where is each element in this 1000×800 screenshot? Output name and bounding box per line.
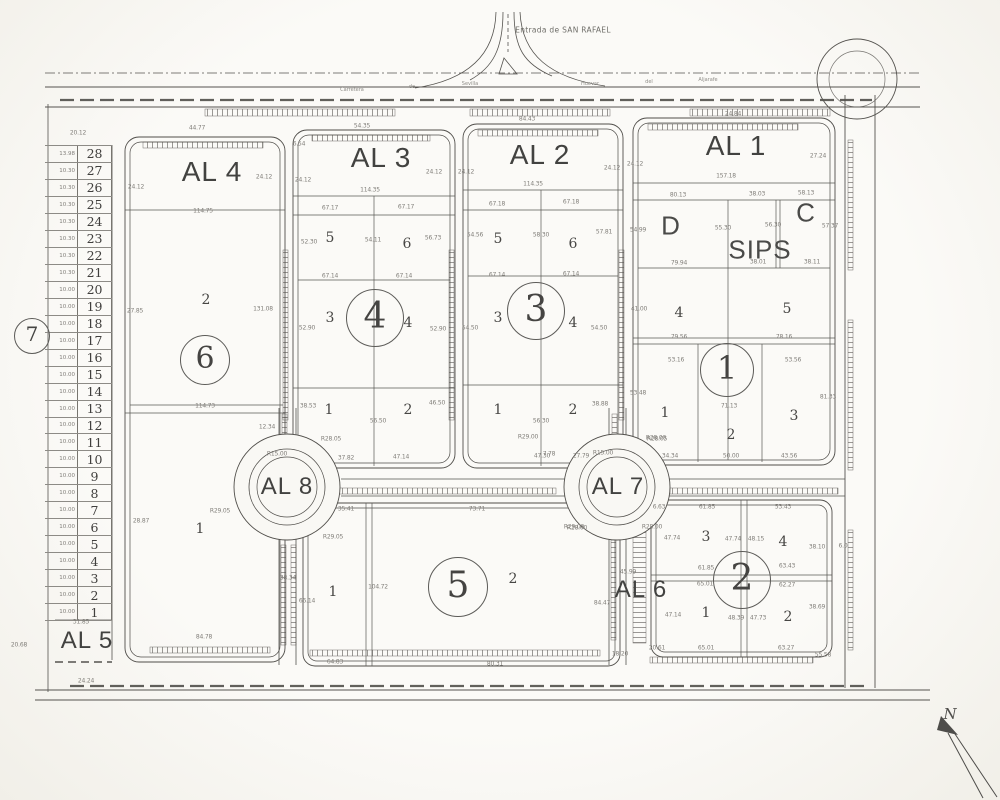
lot-number: 22 [77,248,112,264]
lot-number: 18 [77,316,112,332]
lot-row: 10.0015 [45,367,112,384]
lot-row: 10.008 [45,485,112,502]
lot-width-dim: 10.00 [45,282,77,298]
lot-width-dim: 10.00 [45,485,77,501]
lot-row: 10.003 [45,570,112,587]
site-plan-sheet: 13.982810.302710.302610.302510.302410.30… [0,0,1000,800]
lot-width-dim: 10.30 [45,197,77,213]
lot-width-dim: 10.00 [45,570,77,586]
lot-row: 10.0013 [45,401,112,418]
lot-row: 10.0010 [45,451,112,468]
right-road [817,39,897,688]
lot-width-dim: 10.00 [45,333,77,349]
lot-row: 10.004 [45,553,112,570]
lot-width-dim: 10.30 [45,180,77,196]
lot-width-dim: 10.00 [45,367,77,383]
lot-width-dim: 10.00 [45,502,77,518]
lot-row: 10.005 [45,536,112,553]
lot-row: 10.3022 [45,248,112,265]
lot-number: 28 [77,146,112,162]
road-junction [415,12,605,88]
lot-row: 10.002 [45,587,112,604]
lot-width-dim: 10.00 [45,401,77,417]
lot-width-dim: 10.00 [45,604,77,620]
lot-number: 7 [77,502,112,518]
lot-row: 10.3025 [45,197,112,214]
lot-width-dim: 10.00 [45,299,77,315]
lot-row: 10.3023 [45,231,112,248]
lot-width-dim: 10.30 [45,214,77,230]
lot-row: 10.007 [45,502,112,519]
lot-number: 17 [77,333,112,349]
lot-width-dim: 10.00 [45,468,77,484]
lot-number: 6 [77,519,112,535]
lot-width-dim: 10.30 [45,231,77,247]
lot-width-dim: 10.30 [45,163,77,179]
lot-number: 15 [77,367,112,383]
lot-number: 10 [77,451,112,467]
lot-number: 2 [77,587,112,603]
plan-linework [0,0,1000,800]
lot-number: 19 [77,299,112,315]
lot-width-dim: 10.30 [45,248,77,264]
lot-number: 16 [77,350,112,366]
lot-number: 5 [77,536,112,552]
lot-number: 13 [77,401,112,417]
lot-row: 10.0018 [45,316,112,333]
lot-row: 10.0012 [45,418,112,435]
lot-width-dim: 10.00 [45,434,77,450]
lot-number: 12 [77,418,112,434]
lot-row: 10.006 [45,519,112,536]
roundabout-al8 [234,434,340,540]
perimeter-roads [35,104,930,700]
lot-number: 11 [77,434,112,450]
lot-number: 21 [77,265,112,281]
lot-width-dim: 10.00 [45,519,77,535]
lot-row: 10.0020 [45,282,112,299]
lot-row: 10.3026 [45,180,112,197]
lot-number: 1 [77,604,112,620]
lot-number: 23 [77,231,112,247]
parking-hatch-strips [143,109,853,663]
lot-number: 3 [77,570,112,586]
lot-row: 10.3027 [45,163,112,180]
north-arrow [937,716,997,798]
al5-lot-strip: 13.982810.302710.302610.302510.302410.30… [45,145,112,621]
lot-width-dim: 10.00 [45,384,77,400]
lot-width-dim: 13.98 [45,146,77,162]
lot-number: 8 [77,485,112,501]
lot-row: 10.0019 [45,299,112,316]
lot-row: 10.009 [45,468,112,485]
lot-width-dim: 10.30 [45,265,77,281]
lot-number: 25 [77,197,112,213]
lot-number: 27 [77,163,112,179]
lot-number: 4 [77,553,112,569]
lot-row: 10.0016 [45,350,112,367]
lot-width-dim: 10.00 [45,316,77,332]
lot-width-dim: 10.00 [45,553,77,569]
lot-row: 10.0014 [45,384,112,401]
lot-width-dim: 10.00 [45,451,77,467]
lot-number: 24 [77,214,112,230]
lot-row: 10.001 [45,604,112,621]
lot-width-dim: 10.00 [45,587,77,603]
lot-row: 10.0017 [45,333,112,350]
lot-row: 13.9828 [45,146,112,163]
lot-row: 10.3021 [45,265,112,282]
interior-streets [279,408,845,665]
lot-number: 26 [77,180,112,196]
lot-row: 10.0011 [45,434,112,451]
lot-width-dim: 10.00 [45,536,77,552]
lot-row: 10.3024 [45,214,112,231]
roundabout-al7 [564,434,670,540]
main-road [45,73,920,107]
lot-number: 9 [77,468,112,484]
lot-number: 20 [77,282,112,298]
parcel-division-lines [125,183,835,666]
lot-width-dim: 10.00 [45,350,77,366]
lot-width-dim: 10.00 [45,418,77,434]
lot-number: 14 [77,384,112,400]
